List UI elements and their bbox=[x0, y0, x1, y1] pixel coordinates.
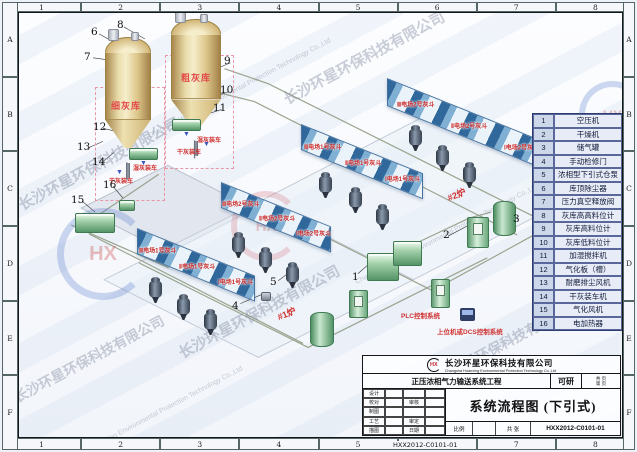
hopper-label: Ⅲ电场2号灰斗 bbox=[397, 99, 434, 108]
silo-pump bbox=[204, 313, 217, 330]
air-tank bbox=[310, 312, 334, 347]
legend-item-name: 库顶除尘器 bbox=[554, 182, 622, 196]
field-label: 工艺 bbox=[363, 417, 385, 426]
silo-pump bbox=[436, 149, 449, 166]
grid-label: F bbox=[2, 375, 18, 450]
field-label: 日期 bbox=[403, 426, 425, 435]
callout-3: 3 bbox=[513, 213, 520, 225]
callout-16: 16 bbox=[103, 179, 116, 191]
grid-label: B bbox=[623, 77, 635, 152]
legend-item-number: 13 bbox=[533, 276, 554, 290]
dcs-label: 上位机或DCS控制系统 bbox=[437, 326, 503, 336]
grid-label: 4 bbox=[239, 2, 318, 12]
project-name: 正压浓相气力输送系统工程 bbox=[363, 374, 551, 388]
silo-cone bbox=[105, 120, 151, 150]
drawing-sheet: 12345678 12345678 ABCDEF ABCDEF HXX2012-… bbox=[0, 0, 637, 452]
grid-label: E bbox=[623, 301, 635, 376]
grid-label: 2 bbox=[81, 438, 160, 450]
grid-label: 2 bbox=[81, 2, 160, 12]
scale-value bbox=[473, 422, 496, 435]
legend-item-name: 灰库高高料位计 bbox=[554, 209, 622, 223]
grid-label: 7 bbox=[477, 438, 556, 450]
callout-2: 2 bbox=[443, 229, 450, 241]
grid-label: A bbox=[623, 2, 635, 77]
grid-label: C bbox=[2, 151, 18, 226]
hopper-label: Ⅱ电场1号灰斗 bbox=[179, 261, 215, 270]
title-block-project-row: 正压浓相气力输送系统工程 可研 共 页 第 页 bbox=[363, 374, 620, 389]
pressure-valve-icon bbox=[131, 32, 139, 41]
legend-item-name: 气化板（槽） bbox=[554, 263, 622, 277]
grid-ruler-left: ABCDEF bbox=[2, 2, 18, 450]
legend-item-name: 灰库高料位计 bbox=[554, 222, 622, 236]
company-name-en: Changsha Huanxing Environmental Protecti… bbox=[445, 369, 556, 373]
grid-label: E bbox=[2, 301, 18, 376]
hopper-label: Ⅲ电场1号灰斗 bbox=[304, 141, 341, 150]
grid-label: C bbox=[623, 151, 635, 226]
dry-loading-label: 干灰装车 bbox=[177, 147, 201, 156]
design-stage: 可研 bbox=[551, 374, 582, 388]
silo-pump bbox=[463, 166, 476, 183]
legend-item-name: 气化风机 bbox=[554, 303, 622, 317]
grid-label: B bbox=[2, 77, 18, 152]
legend-table: 1 空压机 2 干燥机 3 储气罐 4 手动检修门 bbox=[532, 113, 623, 331]
grid-label: 6 bbox=[398, 2, 477, 12]
plc-cabinet bbox=[431, 279, 450, 308]
legend-item-number: 15 bbox=[533, 303, 554, 317]
legend-item-name: 干燥机 bbox=[554, 128, 622, 142]
grid-label: 5 bbox=[319, 2, 398, 12]
electric-heater bbox=[119, 200, 135, 211]
equipment-cabinet bbox=[349, 290, 368, 318]
legend-item-number: 7 bbox=[533, 195, 554, 209]
legend-item-name: 手动检修门 bbox=[554, 155, 622, 169]
grid-ruler-bottom: 12345678 bbox=[2, 438, 635, 450]
callout-6: 6 bbox=[91, 26, 98, 38]
hopper-label: Ⅱ电场2号灰斗 bbox=[451, 121, 487, 130]
field-label: 审核 bbox=[403, 398, 425, 407]
margin-drawing-number: HXX2012-C0101-01 bbox=[390, 441, 460, 449]
title-block: HX 长沙环星环保科技有限公司 Changsha Huanxing Enviro… bbox=[362, 355, 621, 436]
legend-item-number: 1 bbox=[533, 114, 554, 128]
silo-pump bbox=[376, 208, 389, 225]
silo-pump bbox=[149, 281, 162, 298]
callout-11: 11 bbox=[213, 102, 226, 114]
hopper-label: Ⅱ电场2号灰斗 bbox=[259, 213, 295, 222]
silo-pump bbox=[286, 266, 299, 283]
dcs-computer bbox=[460, 308, 475, 321]
silo-pump bbox=[349, 191, 362, 208]
grid-label: F bbox=[623, 375, 635, 450]
silo-pump bbox=[177, 298, 190, 315]
legend-item-name: 储气罐 bbox=[554, 141, 622, 155]
grid-label: 7 bbox=[477, 2, 556, 12]
company-name-cn: 长沙环星环保科技有限公司 bbox=[445, 357, 556, 369]
legend-item-number: 3 bbox=[533, 141, 554, 155]
field-label: 描图 bbox=[363, 426, 385, 435]
company-logo: HX bbox=[427, 358, 441, 372]
grid-label: D bbox=[623, 226, 635, 301]
wet-loading-label: 湿灰装车 bbox=[133, 163, 157, 172]
dryer bbox=[467, 217, 489, 248]
grid-label: D bbox=[2, 226, 18, 301]
legend-item-name: 耐磨排尘风机 bbox=[554, 276, 622, 290]
callout-12: 12 bbox=[93, 121, 106, 133]
legend-item-name: 灰库低料位计 bbox=[554, 236, 622, 250]
grid-label: 3 bbox=[160, 2, 239, 12]
grid-label: 3 bbox=[160, 438, 239, 450]
grid-ruler-top: 12345678 bbox=[2, 2, 635, 12]
down-arrow-icon: ▼ bbox=[116, 169, 123, 176]
title-block-company-row: HX 长沙环星环保科技有限公司 Changsha Huanxing Enviro… bbox=[363, 356, 620, 374]
hopper-label: Ⅰ电场1号灰斗 bbox=[218, 276, 253, 285]
hopper-label: Ⅱ电场1号灰斗 bbox=[345, 158, 381, 167]
callout-1: 1 bbox=[352, 271, 359, 283]
hopper-label: Ⅲ电场2号灰斗 bbox=[222, 198, 259, 207]
down-arrow-icon: ▼ bbox=[183, 131, 190, 138]
silo-pump bbox=[259, 251, 272, 268]
callout-8: 8 bbox=[117, 19, 124, 31]
legend-item-number: 8 bbox=[533, 209, 554, 223]
legend-item-number: 10 bbox=[533, 236, 554, 250]
hopper-label: Ⅲ电场1号灰斗 bbox=[139, 245, 176, 254]
callout-5: 5 bbox=[270, 276, 277, 288]
hopper-label: Ⅰ电场1号灰斗 bbox=[385, 174, 420, 183]
page-count-cell: 共 页 第 页 bbox=[582, 374, 620, 388]
drawing-area: 长沙环星环保科技有限公司 长沙环星环保科技有限公司 长沙环星环保科技有限公司 长… bbox=[18, 12, 623, 438]
field-label: 校对 bbox=[363, 398, 385, 407]
callout-15: 15 bbox=[71, 194, 84, 206]
legend-item-number: 5 bbox=[533, 168, 554, 182]
wet-loading-label: 湿灰装车 bbox=[197, 135, 221, 144]
callout-10: 10 bbox=[220, 84, 233, 96]
callout-4: 4 bbox=[232, 300, 239, 312]
grid-label: 5 bbox=[319, 438, 398, 450]
silo-body bbox=[171, 35, 221, 99]
field-label: 审定 bbox=[403, 417, 425, 426]
humidifying-mixer bbox=[172, 119, 201, 131]
sheet-count: 共 张 bbox=[496, 422, 531, 435]
gasification-fan bbox=[75, 213, 115, 233]
legend-item-number: 9 bbox=[533, 222, 554, 236]
drawing-number: HXX2012-C0101-01 bbox=[531, 422, 620, 435]
legend-item-number: 12 bbox=[533, 263, 554, 277]
silo-pump bbox=[409, 129, 422, 146]
manual-access-valve bbox=[261, 292, 271, 301]
callout-9: 9 bbox=[224, 55, 231, 67]
legend-item-name: 电加热器 bbox=[554, 317, 622, 331]
legend-item-name: 加湿搅拌机 bbox=[554, 249, 622, 263]
humidifying-mixer bbox=[129, 148, 158, 160]
field-label: 制图 bbox=[363, 407, 385, 416]
scale-label: 比例 bbox=[446, 422, 473, 435]
coarse-silo-label: 粗灰库 bbox=[181, 71, 211, 84]
callout-14: 14 bbox=[92, 156, 105, 168]
drawing-title: 系统流程图 (下引式) bbox=[446, 389, 620, 421]
silo-pump bbox=[232, 236, 245, 253]
legend-item-number: 4 bbox=[533, 155, 554, 169]
grid-label: 4 bbox=[239, 438, 318, 450]
silo-pump bbox=[319, 176, 332, 193]
plc-label: PLC控制系统 bbox=[401, 310, 440, 320]
legend-item-number: 14 bbox=[533, 290, 554, 304]
legend-item-number: 16 bbox=[533, 317, 554, 331]
callout-7: 7 bbox=[84, 51, 91, 63]
signature-grid: 设计 校对审核 制图 工艺审定 描图日期 bbox=[363, 389, 446, 435]
legend-item-number: 6 bbox=[533, 182, 554, 196]
legend-item-name: 空压机 bbox=[554, 114, 622, 128]
field-label: 设计 bbox=[363, 389, 385, 398]
legend-item-name: 浓相型下引式仓泵 bbox=[554, 168, 622, 182]
hopper-label: Ⅰ电场2号灰斗 bbox=[296, 228, 331, 237]
legend-item-number: 11 bbox=[533, 249, 554, 263]
fine-silo-label: 细灰库 bbox=[111, 99, 141, 112]
silo-top-dust-collector-icon bbox=[175, 12, 186, 23]
legend-item-number: 2 bbox=[533, 128, 554, 142]
pressure-valve-icon bbox=[200, 14, 208, 23]
legend-item-name: 压力真空释放阀 bbox=[554, 195, 622, 209]
legend-item-name: 干灰装车机 bbox=[554, 290, 622, 304]
title-block-bottom-row: 比例 共 张 HXX2012-C0101-01 bbox=[446, 421, 620, 435]
grid-label: A bbox=[2, 2, 18, 77]
grid-ruler-right: ABCDEF bbox=[623, 2, 635, 450]
air-compressor bbox=[393, 241, 422, 266]
callout-13: 13 bbox=[77, 141, 90, 153]
pages-current: 第 页 bbox=[596, 381, 606, 386]
